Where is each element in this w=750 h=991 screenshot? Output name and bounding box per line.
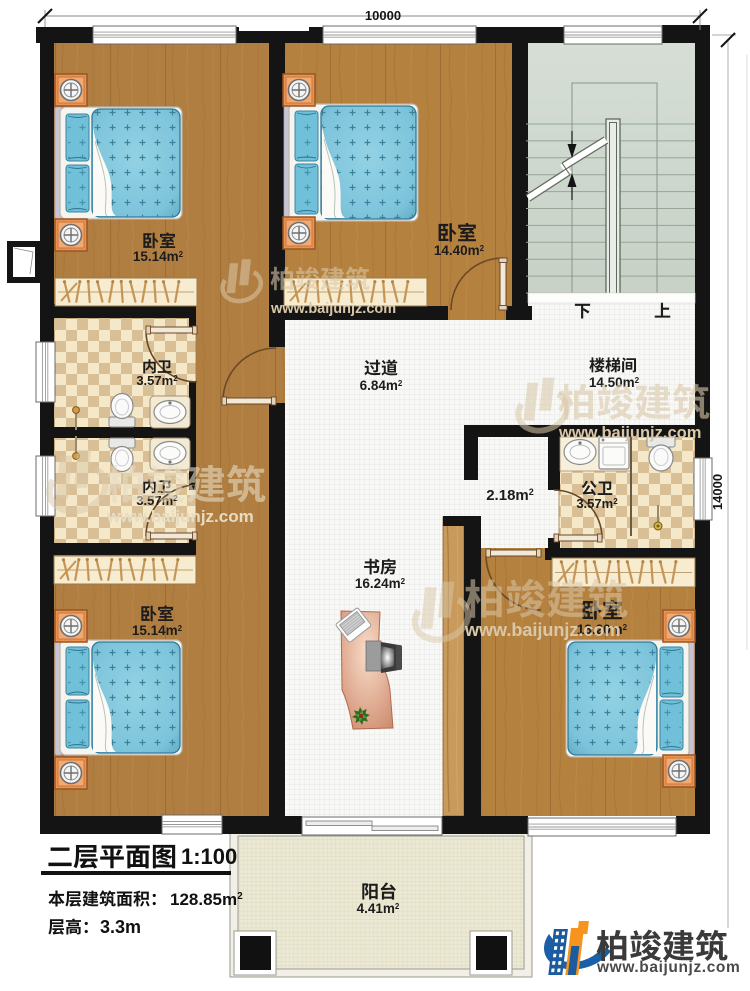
svg-text:4.41m2: 4.41m2 — [357, 901, 400, 916]
svg-text:www.baijunjz.com: www.baijunjz.com — [558, 424, 701, 442]
svg-text:www.baijunjz.com: www.baijunjz.com — [464, 620, 620, 640]
svg-text:14000: 14000 — [710, 474, 725, 510]
svg-text:3.3m: 3.3m — [100, 917, 141, 937]
svg-text:15.14m2: 15.14m2 — [133, 249, 184, 264]
svg-text:6.84m2: 6.84m2 — [360, 378, 403, 393]
svg-text:3.57m2: 3.57m2 — [576, 496, 618, 511]
svg-text:14.50m2: 14.50m2 — [589, 375, 640, 390]
svg-text:10000: 10000 — [365, 8, 401, 23]
svg-text:2.18m2: 2.18m2 — [486, 487, 534, 504]
svg-text:3.57m2: 3.57m2 — [136, 373, 178, 388]
svg-text:1:100: 1:100 — [181, 844, 237, 869]
svg-text:128.85m2: 128.85m2 — [170, 890, 243, 909]
svg-text:16.24m2: 16.24m2 — [355, 576, 406, 591]
svg-text:14.40m2: 14.40m2 — [434, 243, 485, 258]
svg-text:www.baijunjz.com: www.baijunjz.com — [270, 301, 396, 317]
svg-text:www.baijunjz.com: www.baijunjz.com — [596, 959, 740, 976]
svg-text:www.baijunjz.com: www.baijunjz.com — [106, 507, 254, 526]
svg-text:15.14m2: 15.14m2 — [132, 623, 183, 638]
